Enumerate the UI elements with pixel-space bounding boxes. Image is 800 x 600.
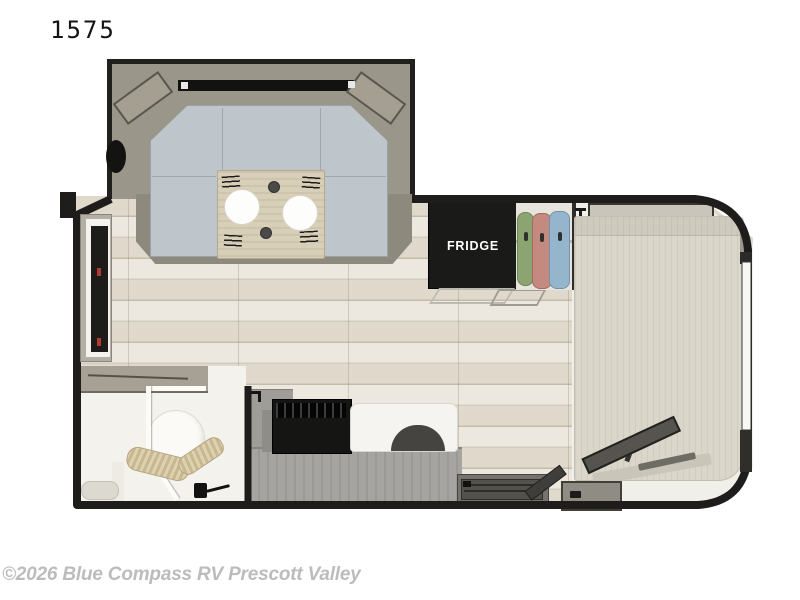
cushion-seam	[152, 176, 216, 177]
plate-icon	[282, 195, 318, 231]
door-latch-icon	[97, 268, 101, 276]
storage-step-box	[561, 481, 622, 511]
dealer-watermark: ©2026 Blue Compass RV Prescott Valley	[2, 564, 361, 586]
cooktop-icon	[272, 399, 352, 454]
porthole-window-icon	[106, 140, 126, 173]
step-tread	[464, 484, 534, 486]
fridge-label: FRIDGE	[447, 239, 499, 253]
shower-wall-top	[146, 386, 206, 391]
sink-icon	[350, 403, 458, 452]
window-tick	[348, 81, 355, 88]
bed-bolster	[575, 217, 743, 236]
utensils-icon	[300, 231, 319, 245]
refrigerator: FRIDGE	[428, 202, 518, 289]
sink-bowl	[391, 425, 445, 451]
faucet-icon	[258, 391, 261, 402]
cup-icon	[268, 181, 280, 193]
cushion-seam	[320, 108, 321, 170]
model-number: 1575	[50, 16, 116, 44]
box-handle	[570, 491, 581, 498]
wardrobe-closet	[516, 200, 576, 290]
dinette-window	[178, 80, 360, 91]
toilet-sprayer-icon	[194, 483, 207, 498]
dinette-table	[217, 170, 325, 259]
wall-stub	[60, 192, 76, 218]
burner-grate	[276, 403, 346, 418]
utensils-icon	[302, 176, 321, 190]
cup-icon	[260, 227, 272, 239]
door-latch-icon	[97, 338, 101, 346]
hanging-clothes-blue	[549, 211, 570, 289]
window-tick	[181, 82, 188, 89]
utensils-icon	[224, 235, 243, 249]
wire-shelf	[489, 289, 546, 306]
kitchen-counter	[249, 447, 462, 506]
cushion-seam	[322, 176, 386, 177]
entry-door	[91, 226, 108, 352]
bath-ledge	[81, 481, 119, 500]
utensils-icon	[222, 175, 241, 189]
floorplan-image: 1575 FRIDGE	[0, 0, 800, 600]
plate-icon	[224, 189, 260, 225]
shelf-bracket-icon	[575, 208, 586, 211]
step-latch-icon	[463, 481, 471, 487]
cushion-seam	[222, 108, 223, 170]
